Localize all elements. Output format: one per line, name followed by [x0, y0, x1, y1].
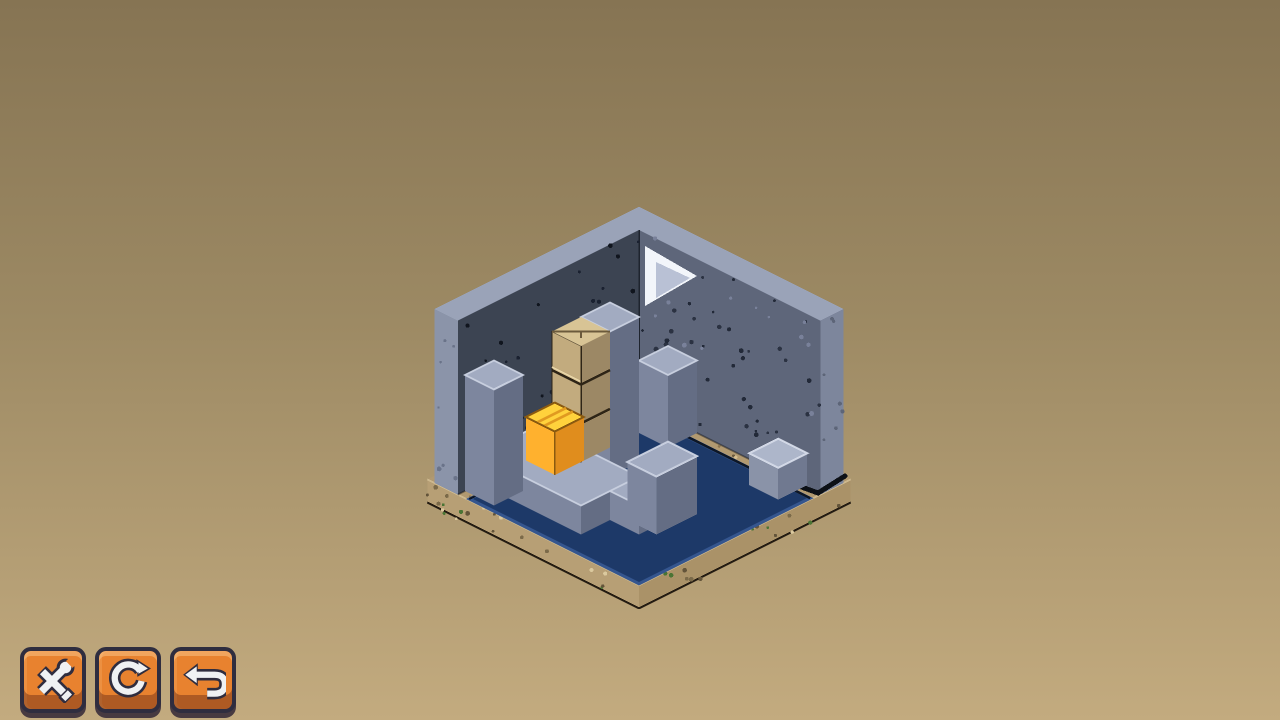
- restart-icon: [105, 657, 151, 703]
- undo-icon: [180, 657, 226, 703]
- bench-block: [639, 346, 697, 448]
- yellow-crate: [526, 403, 584, 476]
- puzzle-scene: [0, 0, 1280, 720]
- left-pillar: [465, 361, 523, 506]
- tools-icon: [30, 657, 76, 703]
- restart-button[interactable]: [95, 647, 161, 713]
- game-viewport: [0, 0, 1280, 720]
- settings-button[interactable]: [20, 647, 86, 713]
- undo-button[interactable]: [170, 647, 236, 713]
